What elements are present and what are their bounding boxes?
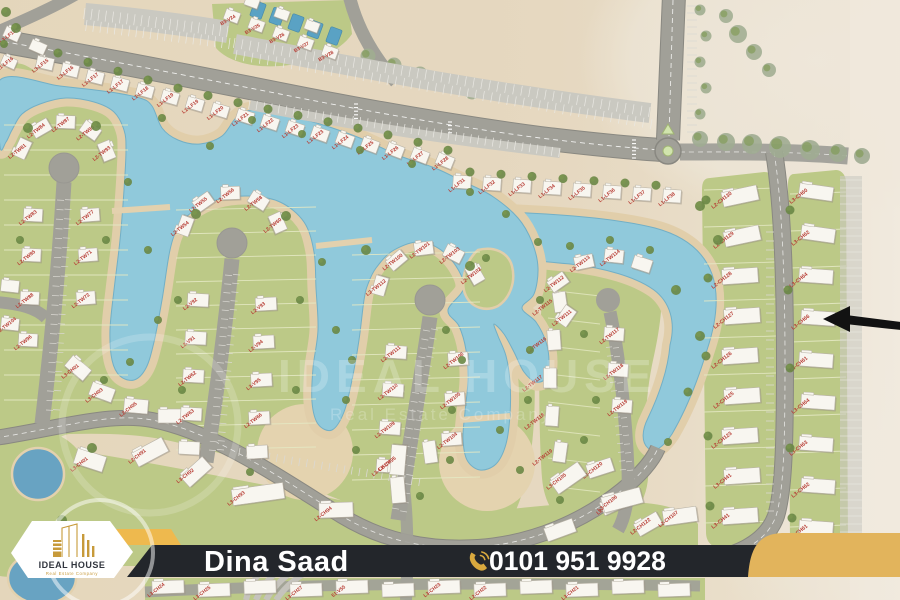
svg-text:IDEAL HOUSE: IDEAL HOUSE <box>39 560 106 570</box>
svg-text:0101 951 9928: 0101 951 9928 <box>489 546 666 576</box>
svg-text:IDEAL HOUSE: IDEAL HOUSE <box>278 350 658 402</box>
svg-text:Real Estate Company: Real Estate Company <box>330 405 552 424</box>
svg-text:Real Estate Company: Real Estate Company <box>46 571 98 576</box>
svg-text:Dina Saad: Dina Saad <box>204 546 349 578</box>
